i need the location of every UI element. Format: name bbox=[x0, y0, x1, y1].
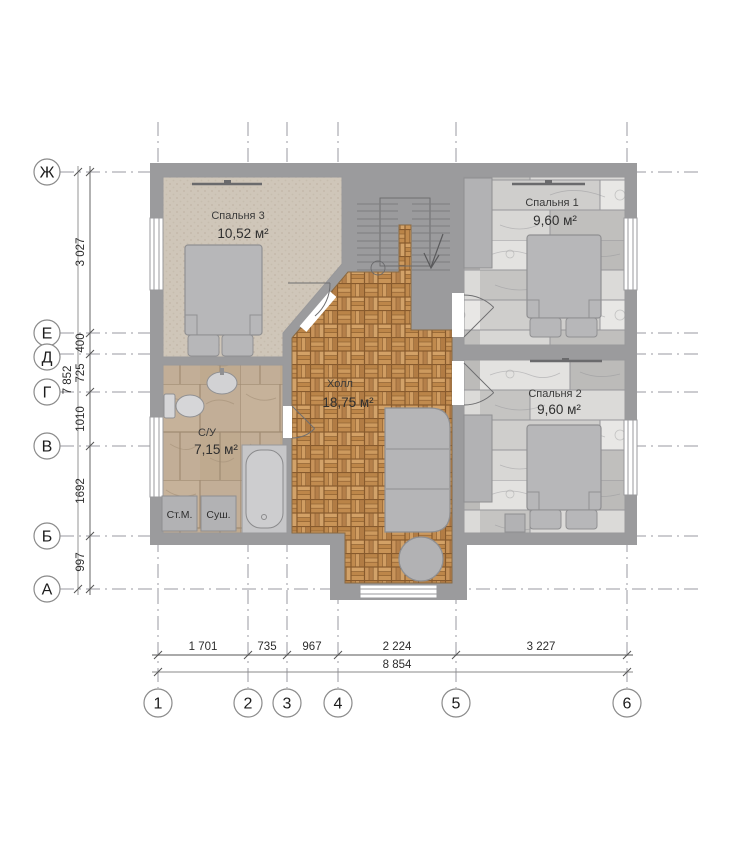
washing-machine-label: Ст.М. bbox=[167, 509, 193, 521]
axis-row-a: А bbox=[34, 576, 60, 602]
axis-row-zh: Ж bbox=[34, 159, 60, 185]
dim-vertical-3: 725 bbox=[75, 363, 87, 382]
window-bedroom1 bbox=[624, 218, 637, 290]
room-area-bedroom2: 9,60 м² bbox=[537, 402, 581, 417]
axis-row-d: Д bbox=[34, 344, 60, 370]
svg-text:6: 6 bbox=[623, 696, 632, 713]
bed-bedroom1 bbox=[527, 235, 601, 318]
window-bedroom3 bbox=[150, 218, 163, 290]
window-bedroom2 bbox=[624, 420, 637, 495]
svg-text:4: 4 bbox=[334, 696, 343, 713]
dim-horizontal-3: 967 bbox=[302, 641, 321, 653]
svg-text:2: 2 bbox=[244, 696, 253, 713]
sink bbox=[207, 372, 237, 394]
dim-horizontal-total: 8 854 bbox=[383, 659, 412, 671]
dim-vertical-5: 1692 bbox=[75, 478, 87, 504]
door-opening-bedroom1 bbox=[452, 293, 464, 337]
pillow bbox=[530, 318, 561, 337]
dim-vertical-2: 400 bbox=[75, 333, 87, 352]
pillow bbox=[566, 318, 597, 337]
bed-bedroom2 bbox=[527, 425, 601, 510]
round-table bbox=[399, 537, 443, 581]
floor-plan-drawing: Ст.М. Суш. Спальня 3 10,52 м² Спальня 1 … bbox=[0, 0, 750, 842]
dryer-label: Суш. bbox=[206, 509, 230, 521]
dim-vertical-total: 7 852 bbox=[62, 366, 74, 395]
axis-col-4: 4 bbox=[324, 689, 352, 717]
dim-horizontal-1: 1 701 bbox=[189, 641, 218, 653]
dimension-bottom: 1 701 735 967 2 224 3 227 8 854 bbox=[152, 641, 633, 676]
room-name-bedroom1: Спальня 1 bbox=[525, 197, 578, 209]
dim-vertical-6: 997 bbox=[75, 552, 87, 571]
dim-horizontal-2: 735 bbox=[257, 641, 276, 653]
window-bathroom bbox=[150, 417, 163, 497]
axis-col-5: 5 bbox=[442, 689, 470, 717]
pillow bbox=[222, 335, 253, 356]
toilet-tank bbox=[164, 394, 175, 418]
pillow bbox=[530, 510, 561, 529]
dim-horizontal-4: 2 224 bbox=[383, 641, 412, 653]
svg-text:3: 3 bbox=[283, 696, 292, 713]
axis-row-g: Г bbox=[34, 379, 60, 405]
axis-col-3: 3 bbox=[273, 689, 301, 717]
door-opening-bathroom bbox=[283, 406, 292, 438]
pillow bbox=[188, 335, 219, 356]
room-area-hall: 18,75 м² bbox=[322, 395, 374, 410]
svg-text:В: В bbox=[42, 439, 53, 456]
svg-text:Г: Г bbox=[43, 385, 52, 402]
wardrobe-bedroom1 bbox=[464, 178, 492, 268]
room-name-hall: Холл bbox=[327, 378, 353, 390]
room-name-bedroom2: Спальня 2 bbox=[528, 388, 581, 400]
room-name-bathroom: С/У bbox=[198, 427, 217, 439]
room-area-bedroom3: 10,52 м² bbox=[217, 226, 269, 241]
curtain-rail-bracket bbox=[545, 180, 552, 184]
dimension-left: 3 027 400 725 1010 1692 997 7 852 bbox=[62, 166, 94, 595]
axis-row-v: В bbox=[34, 433, 60, 459]
axis-row-b: Б bbox=[34, 523, 60, 549]
axis-col-1: 1 bbox=[144, 689, 172, 717]
svg-text:Б: Б bbox=[42, 529, 53, 546]
dim-vertical-1: 3 027 bbox=[75, 238, 87, 267]
svg-text:5: 5 bbox=[452, 696, 461, 713]
dim-horizontal-5: 3 227 bbox=[527, 641, 556, 653]
svg-text:1: 1 bbox=[154, 696, 163, 713]
svg-text:А: А bbox=[42, 582, 53, 599]
nightstand-bedroom2 bbox=[505, 514, 525, 532]
dim-vertical-4: 1010 bbox=[75, 406, 87, 432]
toilet-bowl bbox=[176, 395, 204, 417]
axis-col-2: 2 bbox=[234, 689, 262, 717]
axis-col-6: 6 bbox=[613, 689, 641, 717]
axis-row-e: Е bbox=[34, 320, 60, 346]
axis-bubbles-left: Ж Е Д Г В Б А bbox=[34, 159, 60, 602]
svg-text:Ж: Ж bbox=[40, 165, 55, 182]
sofa bbox=[385, 408, 450, 532]
door-opening-bedroom2 bbox=[452, 361, 464, 405]
pillow bbox=[566, 510, 597, 529]
floor-plan-page: Ст.М. Суш. Спальня 3 10,52 м² Спальня 1 … bbox=[0, 0, 750, 842]
curtain-rail-bracket bbox=[562, 358, 569, 362]
wardrobe-bedroom2 bbox=[464, 415, 492, 502]
room-name-bedroom3: Спальня 3 bbox=[211, 210, 264, 222]
curtain-rail-bracket bbox=[224, 180, 231, 184]
svg-text:Д: Д bbox=[42, 350, 53, 367]
sink-tap bbox=[220, 368, 224, 375]
svg-text:Е: Е bbox=[42, 326, 53, 343]
axis-bubbles-bottom: 1 2 3 4 5 6 bbox=[144, 689, 641, 717]
bathtub-inner bbox=[246, 450, 283, 528]
window-bay bbox=[360, 585, 437, 598]
room-area-bedroom1: 9,60 м² bbox=[533, 213, 577, 228]
room-area-bathroom: 7,15 м² bbox=[194, 442, 238, 457]
